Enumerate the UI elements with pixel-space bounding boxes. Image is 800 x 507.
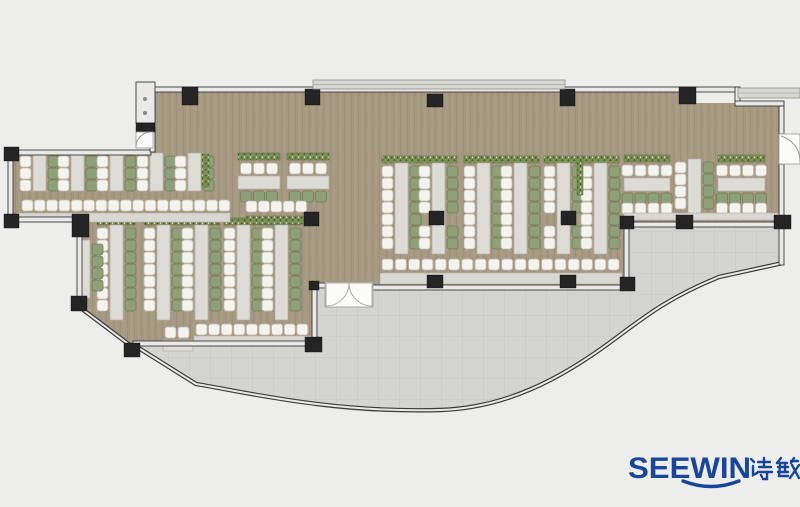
chair-green xyxy=(529,178,540,189)
chair-white xyxy=(515,259,526,270)
chair-green xyxy=(210,240,221,251)
chair-white xyxy=(419,202,430,213)
chair-white xyxy=(635,203,646,214)
chair-green xyxy=(48,156,59,167)
chair-white xyxy=(464,166,475,177)
chair-green xyxy=(635,193,646,204)
shaft-block xyxy=(136,123,155,132)
chair-green xyxy=(730,193,741,204)
chair-green xyxy=(125,252,136,263)
chair-green xyxy=(125,240,136,251)
chair-white xyxy=(622,203,633,214)
chair-white xyxy=(661,165,672,176)
chair-green xyxy=(252,288,263,299)
chair-white xyxy=(464,190,475,201)
chair-green xyxy=(609,202,620,213)
shaft-fitting xyxy=(143,97,147,101)
chair-white xyxy=(224,288,235,299)
chair-white xyxy=(262,288,273,299)
chair-white xyxy=(296,201,307,212)
chair-green xyxy=(290,228,301,239)
structural-column xyxy=(124,343,140,357)
chair-green xyxy=(447,166,458,177)
structural-column xyxy=(182,87,198,105)
chair-white xyxy=(462,259,473,270)
chair-green xyxy=(125,300,136,311)
chair-white xyxy=(743,203,754,214)
structural-column xyxy=(774,215,791,229)
chair-white xyxy=(175,180,186,191)
chair-white xyxy=(120,200,131,211)
chair-green xyxy=(609,178,620,189)
chair-white xyxy=(501,190,512,201)
dining-table xyxy=(71,153,84,191)
chair-white xyxy=(182,264,193,275)
window-wall xyxy=(133,341,314,346)
chair-white xyxy=(581,226,592,237)
chair-white xyxy=(730,203,741,214)
chair-white xyxy=(464,178,475,189)
chair-white xyxy=(262,276,273,287)
chair-green xyxy=(648,193,659,204)
structural-column xyxy=(560,275,576,288)
window-wall xyxy=(17,217,74,222)
chair-green xyxy=(290,288,301,299)
structural-column xyxy=(304,212,319,226)
chair-green xyxy=(529,238,540,249)
chair-green xyxy=(254,191,265,202)
chair-white xyxy=(224,240,235,251)
chair-green xyxy=(447,202,458,213)
chair-green xyxy=(622,193,633,204)
chair-white xyxy=(182,200,193,211)
dining-table xyxy=(718,178,765,191)
bench-counter xyxy=(380,273,622,284)
chair-white xyxy=(464,226,475,237)
chair-white xyxy=(97,180,108,191)
planter-hedge xyxy=(202,154,209,187)
planter-hedge xyxy=(238,153,280,160)
chair-white xyxy=(262,240,273,251)
chair-white xyxy=(544,166,555,177)
structural-column xyxy=(620,216,634,229)
chair-white xyxy=(219,200,230,211)
chair-white xyxy=(290,163,301,174)
chair-white xyxy=(297,324,308,335)
chair-green xyxy=(48,168,59,179)
chair-green xyxy=(241,191,252,202)
chair-white xyxy=(284,324,295,335)
chair-white xyxy=(144,252,155,263)
chair-white xyxy=(97,168,108,179)
structural-column xyxy=(72,214,89,237)
dining-table xyxy=(557,163,570,254)
chair-white xyxy=(20,156,31,167)
chair-white xyxy=(271,201,282,212)
window-wall xyxy=(779,227,784,265)
bench-counter xyxy=(624,213,784,220)
chair-white xyxy=(316,163,327,174)
chair-white xyxy=(97,300,108,311)
chair-white xyxy=(58,180,69,191)
planter-hedge xyxy=(718,155,765,162)
chair-green xyxy=(92,268,103,279)
chair-green xyxy=(717,193,728,204)
chair-green xyxy=(165,168,176,179)
chair-green xyxy=(609,214,620,225)
chair-white xyxy=(259,324,270,335)
chair-white xyxy=(501,202,512,213)
chair-white xyxy=(582,259,593,270)
planter-hedge xyxy=(464,156,502,163)
chair-green xyxy=(92,256,103,267)
chair-green xyxy=(290,264,301,275)
chair-green xyxy=(703,174,714,185)
chair-green xyxy=(125,180,136,191)
chair-green xyxy=(165,180,176,191)
structural-column xyxy=(305,337,322,352)
chair-white xyxy=(262,228,273,239)
chair-white xyxy=(262,300,273,311)
chair-white xyxy=(182,300,193,311)
dining-table xyxy=(110,225,123,320)
chair-white xyxy=(382,214,393,225)
chair-white xyxy=(544,202,555,213)
chair-green xyxy=(125,168,136,179)
dining-table xyxy=(157,225,170,320)
chair-white xyxy=(435,259,446,270)
structural-column xyxy=(560,89,575,106)
chair-green xyxy=(529,166,540,177)
chair-green xyxy=(172,276,183,287)
chair-white xyxy=(675,162,686,173)
chair-white xyxy=(96,200,107,211)
chair-white xyxy=(246,324,257,335)
chair-white xyxy=(207,200,218,211)
chair-white xyxy=(165,327,176,338)
chair-green xyxy=(92,244,103,255)
chair-green xyxy=(529,214,540,225)
chair-white xyxy=(283,201,294,212)
chair-white xyxy=(246,201,257,212)
chair-green xyxy=(210,276,221,287)
shaft-doorway xyxy=(136,132,153,148)
chair-green xyxy=(290,240,301,251)
chair-white xyxy=(635,165,646,176)
chair-white xyxy=(157,200,168,211)
chair-white xyxy=(58,156,69,167)
chair-green xyxy=(290,252,301,263)
chair-white xyxy=(717,165,728,176)
dining-table xyxy=(594,163,607,254)
chair-white xyxy=(622,165,633,176)
chair-white xyxy=(182,228,193,239)
chair-green xyxy=(172,252,183,263)
chair-white xyxy=(544,226,555,237)
structural-column xyxy=(305,89,320,105)
chair-green xyxy=(609,190,620,201)
chair-white xyxy=(224,300,235,311)
chair-green xyxy=(252,252,263,263)
chair-white xyxy=(419,226,430,237)
chair-white xyxy=(194,200,205,211)
structural-column xyxy=(427,94,443,107)
chair-white xyxy=(221,324,232,335)
chair-green xyxy=(609,226,620,237)
chair-white xyxy=(97,156,108,167)
chair-white xyxy=(144,300,155,311)
logo-smile-icon xyxy=(680,479,742,491)
chair-white xyxy=(409,259,420,270)
chair-white xyxy=(196,324,207,335)
shaft-fitting xyxy=(143,111,147,115)
chair-green xyxy=(661,193,672,204)
chair-white xyxy=(59,200,70,211)
chair-white xyxy=(382,226,393,237)
chair-white xyxy=(137,180,148,191)
chair-white xyxy=(137,156,148,167)
chair-white xyxy=(84,200,95,211)
chair-white xyxy=(34,200,45,211)
chair-white xyxy=(71,200,82,211)
planter-hedge xyxy=(544,156,582,163)
chair-white xyxy=(262,264,273,275)
chair-white xyxy=(145,200,156,211)
window-wall xyxy=(312,287,317,343)
dining-table xyxy=(188,153,201,191)
chair-white xyxy=(224,264,235,275)
chair-white xyxy=(419,190,430,201)
structural-column xyxy=(620,277,635,291)
brand-logo: SEEWIN 诗敏 xyxy=(628,452,798,492)
chair-green xyxy=(165,156,176,167)
chair-green xyxy=(609,166,620,177)
chair-white xyxy=(20,180,31,191)
structural-column xyxy=(676,215,693,229)
dining-table xyxy=(688,159,701,215)
chair-white xyxy=(675,186,686,197)
chair-white xyxy=(419,166,430,177)
dining-table xyxy=(624,178,670,191)
chair-white xyxy=(464,214,475,225)
chair-green xyxy=(410,214,421,225)
chair-green xyxy=(252,264,263,275)
chair-green xyxy=(86,168,97,179)
chair-green xyxy=(86,180,97,191)
chair-white xyxy=(144,240,155,251)
dining-table xyxy=(287,176,329,189)
chair-white xyxy=(209,324,220,335)
chair-green xyxy=(252,240,263,251)
chair-green xyxy=(252,228,263,239)
chair-white xyxy=(648,165,659,176)
dining-table xyxy=(237,225,250,320)
chair-white xyxy=(756,203,767,214)
chair-white xyxy=(542,259,553,270)
chair-green xyxy=(210,252,221,263)
chair-green xyxy=(125,276,136,287)
chair-white xyxy=(241,163,252,174)
window-wall xyxy=(8,160,13,217)
chair-white xyxy=(488,259,499,270)
chair-white xyxy=(464,238,475,249)
chair-white xyxy=(170,200,181,211)
chair-white xyxy=(555,259,566,270)
chair-green xyxy=(125,264,136,275)
chair-white xyxy=(382,166,393,177)
chair-green xyxy=(172,240,183,251)
chair-green xyxy=(290,300,301,311)
planter-hedge xyxy=(577,162,583,195)
chair-green xyxy=(172,228,183,239)
chair-green xyxy=(529,190,540,201)
chair-white xyxy=(382,178,393,189)
chair-green xyxy=(756,193,767,204)
chair-white xyxy=(730,165,741,176)
chair-white xyxy=(464,202,475,213)
chair-green xyxy=(48,180,59,191)
chair-white xyxy=(182,252,193,263)
window-wall xyxy=(77,236,82,297)
chair-white xyxy=(224,228,235,239)
dining-table xyxy=(238,176,280,189)
chair-green xyxy=(447,226,458,237)
window-wall xyxy=(779,106,784,134)
chair-white xyxy=(182,288,193,299)
chair-green xyxy=(125,156,136,167)
chair-white xyxy=(501,214,512,225)
chair-white xyxy=(22,200,33,211)
chair-white xyxy=(544,190,555,201)
chair-green xyxy=(447,178,458,189)
service-shaft xyxy=(136,82,155,123)
dining-table xyxy=(477,163,490,254)
chair-green xyxy=(290,276,301,287)
floorplan-drawing xyxy=(0,0,800,507)
chair-white xyxy=(108,200,119,211)
chair-white xyxy=(756,165,767,176)
chair-white xyxy=(675,198,686,209)
planter-hedge xyxy=(501,156,539,163)
chair-white xyxy=(419,178,430,189)
chair-green xyxy=(252,300,263,311)
chair-white xyxy=(382,238,393,249)
chair-white xyxy=(175,156,186,167)
chair-green xyxy=(447,190,458,201)
chair-white xyxy=(267,163,278,174)
chair-green xyxy=(210,300,221,311)
chair-green xyxy=(210,228,221,239)
chair-white xyxy=(137,168,148,179)
window-wall xyxy=(372,285,624,290)
chair-white xyxy=(303,163,314,174)
structural-column xyxy=(561,211,576,225)
chair-white xyxy=(20,168,31,179)
chair-white xyxy=(501,166,512,177)
chair-green xyxy=(252,276,263,287)
structural-column xyxy=(71,296,87,311)
planter-hedge xyxy=(581,156,619,163)
chair-white xyxy=(382,190,393,201)
chair-white xyxy=(661,203,672,214)
window-wall xyxy=(624,222,784,227)
structural-column xyxy=(679,87,696,104)
window-wall xyxy=(735,101,784,106)
dining-table xyxy=(275,225,288,320)
chair-green xyxy=(210,264,221,275)
planter-hedge xyxy=(246,216,308,224)
planter-hedge xyxy=(287,153,329,160)
chair-green xyxy=(303,191,314,202)
chair-green xyxy=(703,198,714,209)
chair-green xyxy=(172,264,183,275)
chair-white xyxy=(568,259,579,270)
chair-white xyxy=(501,226,512,237)
chair-white xyxy=(133,200,144,211)
chair-white xyxy=(144,264,155,275)
structural-column xyxy=(427,275,443,288)
chair-green xyxy=(703,186,714,197)
planter-hedge xyxy=(419,156,457,163)
chair-green xyxy=(609,238,620,249)
chair-green xyxy=(703,162,714,173)
planter-hedge xyxy=(382,156,420,163)
dining-table xyxy=(195,225,208,320)
chair-white xyxy=(382,202,393,213)
chair-white xyxy=(395,259,406,270)
chair-white xyxy=(97,228,108,239)
dining-table xyxy=(395,163,408,254)
chair-green xyxy=(447,238,458,249)
chair-green xyxy=(92,280,103,291)
chair-white xyxy=(648,203,659,214)
chair-white xyxy=(581,238,592,249)
chair-white xyxy=(544,238,555,249)
chair-white xyxy=(234,324,245,335)
logo-cjk-glyphs xyxy=(748,455,800,483)
chair-white xyxy=(175,168,186,179)
chair-white xyxy=(544,178,555,189)
chair-white xyxy=(144,276,155,287)
chair-white xyxy=(419,238,430,249)
chair-white xyxy=(501,178,512,189)
chair-white xyxy=(272,324,283,335)
chair-white xyxy=(675,174,686,185)
chair-green xyxy=(743,193,754,204)
structural-column xyxy=(4,214,19,228)
chair-white xyxy=(178,327,189,338)
structural-column xyxy=(429,211,444,225)
dining-table xyxy=(150,153,163,191)
chair-green xyxy=(267,191,278,202)
chair-white xyxy=(224,252,235,263)
chair-green xyxy=(316,191,327,202)
chair-white xyxy=(262,252,273,263)
dining-table xyxy=(432,163,445,254)
chair-white xyxy=(144,228,155,239)
planter-hedge xyxy=(624,155,670,162)
chair-white xyxy=(58,168,69,179)
dining-table xyxy=(33,153,46,191)
chair-green xyxy=(290,191,301,202)
chair-white xyxy=(224,276,235,287)
chair-white xyxy=(382,259,393,270)
structural-column xyxy=(309,281,319,290)
chair-white xyxy=(608,259,619,270)
chair-white xyxy=(182,276,193,287)
chair-white xyxy=(475,259,486,270)
chair-green xyxy=(86,156,97,167)
